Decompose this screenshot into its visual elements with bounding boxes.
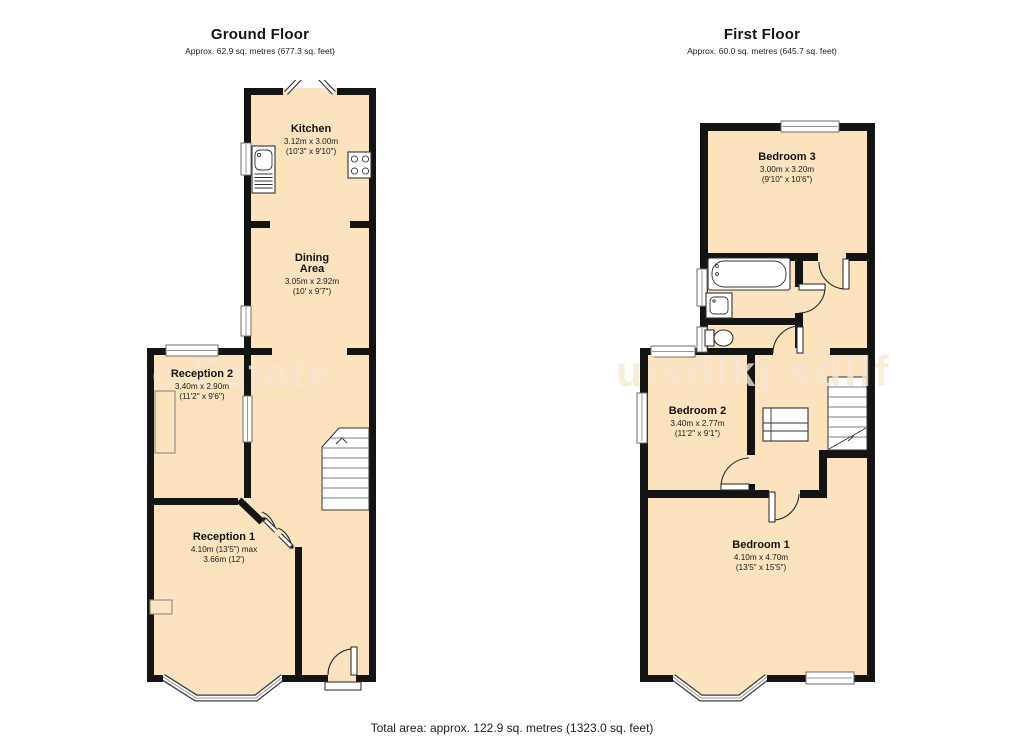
toilet-icon — [705, 330, 733, 346]
room-label-reception2: Reception 2 3.40m x 2.90m (11'2" x 9'6") — [141, 369, 263, 402]
room-dim-imperial: (10' x 9'7") — [251, 287, 373, 297]
cupboard-icon — [763, 408, 808, 441]
bedroom3-window-icon — [781, 121, 839, 132]
room-dim-imperial: (10'3" x 9'10") — [250, 147, 372, 157]
room-dim-metric: 3.00m x 3.20m — [726, 165, 848, 175]
bedroom1-window-icon — [806, 672, 854, 684]
room-dim-imperial: (11'2" x 9'6") — [141, 392, 263, 402]
room-dim-metric: 3.40m x 2.77m — [637, 419, 758, 429]
room-dim-imperial: (9'10" x 10'6") — [726, 175, 848, 185]
room-label-dining-area: Dining Area 3.05m x 2.92m (10' x 9'7") — [251, 253, 373, 297]
reception2-window-icon — [166, 345, 218, 356]
room-name: Bedroom 3 — [726, 152, 848, 163]
room-label-kitchen: Kitchen 3.12m x 3.00m (10'3" x 9'10") — [250, 124, 372, 157]
room-name: Bedroom 2 — [637, 406, 758, 417]
room-label-bedroom3: Bedroom 3 3.00m x 3.20m (9'10" x 10'6") — [726, 152, 848, 185]
ground-stairs-icon — [322, 428, 369, 510]
ground-floor-title: Ground Floor — [150, 26, 370, 43]
dining-window-icon — [241, 306, 251, 336]
room-name: Bedroom 1 — [700, 540, 822, 551]
total-area-text: Total area: approx. 122.9 sq. metres (13… — [0, 721, 1024, 735]
room-name: Kitchen — [250, 124, 372, 135]
ground-floor-subtitle: Approx. 62.9 sq. metres (677.3 sq. feet) — [150, 46, 370, 56]
room-dim-metric: 3.40m x 2.90m — [141, 382, 263, 392]
room-dim-metric: 4.10m (13'5") max — [163, 545, 285, 555]
room-name: Dining Area — [286, 253, 338, 275]
room-dim-metric: 4.10m x 4.70m — [700, 553, 822, 563]
room-dim-imperial: 3.66m (12') — [163, 555, 285, 565]
first-stairs-icon — [828, 377, 867, 450]
first-floor-title: First Floor — [652, 26, 872, 43]
room-label-bedroom2: Bedroom 2 3.40m x 2.77m (11'2" x 9'1") — [637, 406, 758, 439]
room-name: Reception 2 — [141, 369, 263, 380]
room-dim-imperial: (13'5" x 15'5") — [700, 563, 822, 573]
basin-icon — [706, 293, 732, 318]
first-floor-subtitle: Approx. 60.0 sq. metres (645.7 sq. feet) — [652, 46, 872, 56]
room-dim-metric: 3.12m x 3.00m — [250, 137, 372, 147]
bath-icon — [708, 258, 790, 290]
room-label-reception1: Reception 1 4.10m (13'5") max 3.66m (12'… — [163, 532, 285, 565]
room-dim-imperial: (11'2" x 9'1") — [637, 429, 758, 439]
radiator-icon — [243, 396, 252, 442]
first-floor-header: First Floor Approx. 60.0 sq. metres (645… — [652, 26, 872, 56]
floorplan-canvas: c Estate uisdlkj sdllf Ground Floor Appr… — [0, 0, 1024, 745]
room-name: Reception 1 — [163, 532, 285, 543]
ground-floor-header: Ground Floor Approx. 62.9 sq. metres (67… — [150, 26, 370, 56]
landing-window-icon — [651, 346, 695, 357]
cabinet — [150, 600, 172, 614]
room-label-bedroom1: Bedroom 1 4.10m x 4.70m (13'5" x 15'5") — [700, 540, 822, 573]
room-dim-metric: 3.05m x 2.92m — [251, 277, 373, 287]
